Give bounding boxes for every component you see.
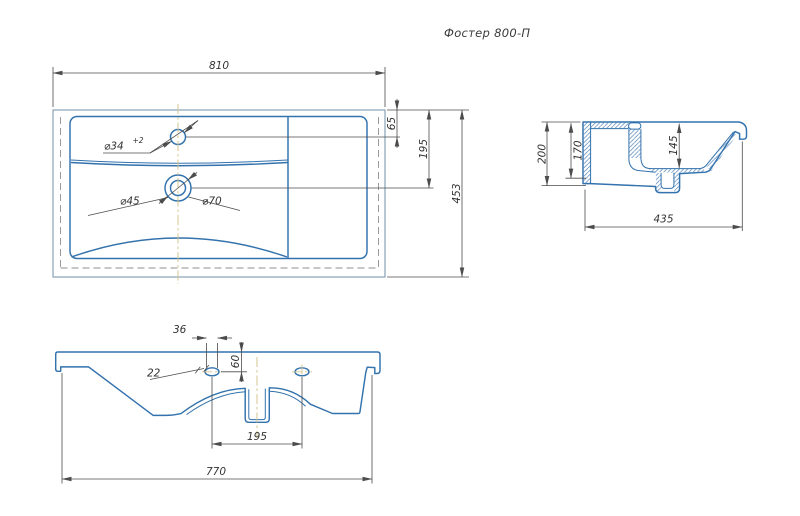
faucet-tolerance-label: +2 (133, 136, 144, 145)
dim-65-label: 65 (386, 117, 398, 131)
bowl-front-edge (72, 238, 288, 257)
callout-faucet: ⌀34 +2 (103, 121, 198, 154)
dim-195-plan-label: 195 (418, 139, 430, 159)
dim-22-label: 22 (147, 368, 161, 380)
dim-770-label: 770 (206, 466, 226, 478)
faucet-dia-label: ⌀34 (104, 141, 124, 153)
front-view: 36 22 60 195 (56, 324, 380, 484)
dim-453: 453 (451, 110, 463, 277)
callout-drain: ⌀45 ⌀70 (88, 173, 240, 216)
drawing-canvas: Фостер 800-П (0, 0, 800, 516)
dim-810-label: 810 (209, 60, 229, 72)
dim-195-front-label: 195 (247, 431, 267, 443)
dim-453-label: 453 (451, 183, 463, 203)
bowl-back-edge-upper (71, 160, 288, 163)
dim-36-label: 36 (173, 324, 187, 336)
drain-outer-dia-label: ⌀70 (202, 196, 222, 208)
bowl-deck-edge (70, 117, 367, 259)
projection-lines (186, 110, 469, 277)
side-outline (583, 122, 747, 193)
plan-view: ⌀34 +2 ⌀45 ⌀70 810 (53, 60, 469, 284)
side-view: 200 170 145 435 (536, 122, 746, 231)
countertop-outer-edge (53, 110, 385, 277)
dim-145-label: 145 (668, 135, 680, 155)
dim-65: 65 (386, 99, 398, 148)
dim-810: 810 (53, 60, 385, 107)
drain-inner-dia-label: ⌀45 (120, 196, 140, 208)
dim-435-label: 435 (653, 214, 673, 226)
dim-200-label: 200 (536, 144, 548, 164)
dim-195-plan: 195 (418, 110, 430, 188)
dim-170-label: 170 (572, 140, 584, 160)
dim-60-label: 60 (230, 355, 242, 369)
drawing-sheet: ⌀34 +2 ⌀45 ⌀70 810 (0, 0, 800, 516)
